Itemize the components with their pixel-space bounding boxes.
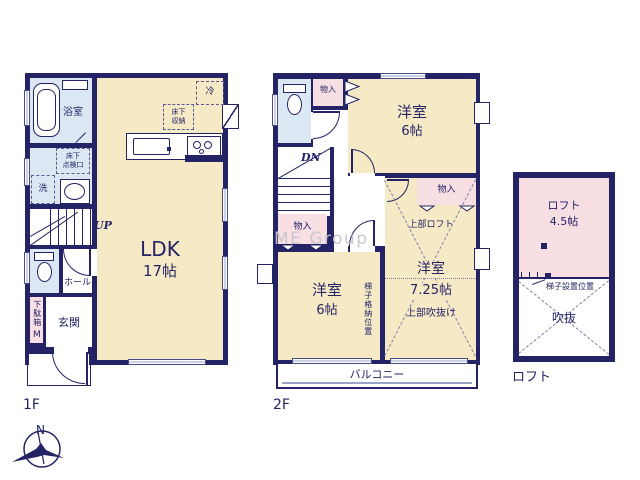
- toilet-bowl-1f: [37, 262, 52, 282]
- ladder-post-mark: [545, 273, 551, 279]
- window: [292, 358, 372, 364]
- stairs-down-label: DN: [301, 151, 321, 164]
- ldk-size-label: 17帖: [130, 262, 190, 280]
- balcony-label: バルコニー: [300, 368, 454, 381]
- ladder-storage-label: 梯子格納位置: [363, 282, 373, 336]
- bedroom-b-size-label: 6帖: [287, 303, 367, 319]
- window: [272, 94, 278, 126]
- burner-right: [204, 141, 212, 149]
- shoe-cabinet-mirror-label: M: [33, 330, 41, 341]
- stairs-up-label: UP: [94, 219, 112, 232]
- compass: N: [10, 416, 74, 480]
- ldk-room: [97, 78, 223, 360]
- floorplan-canvas: ME Group: [0, 0, 640, 480]
- loft-size-label: 4.5帖: [519, 215, 609, 228]
- bedroom-c-size-label: 7.25帖: [391, 283, 471, 299]
- kitchen-sink: [133, 138, 170, 155]
- underfloor-access: 床下 点検口: [56, 148, 90, 174]
- balcony-rail-line: [282, 382, 472, 384]
- bath-counter: [62, 80, 88, 90]
- burner-left: [193, 141, 201, 149]
- entrance-label: 玄関: [47, 316, 91, 329]
- window: [222, 256, 228, 290]
- refrigerator-space: 冷: [196, 81, 224, 105]
- casement-window: [257, 264, 273, 284]
- bathroom-label: 浴室: [63, 107, 83, 119]
- sliding-door-icon: [418, 205, 476, 213]
- bedroom-a-door-leaf: [351, 149, 353, 173]
- ldk-label: LDK: [130, 237, 190, 261]
- window: [380, 73, 426, 79]
- bedroom-c-door-leaf: [387, 179, 409, 181]
- loft-name: ロフト: [512, 366, 551, 385]
- casement-window: [474, 102, 490, 124]
- folding-door-icon: [344, 80, 361, 106]
- hall-door-opening: [92, 249, 97, 276]
- bedroom-b-door-leaf: [373, 220, 375, 246]
- bedroom-c-door-opening: [380, 180, 385, 202]
- toilet-bowl-2f: [287, 94, 302, 115]
- burner-small: [199, 149, 204, 154]
- window: [128, 359, 206, 365]
- floor2-name: 2F: [273, 397, 290, 413]
- window: [390, 358, 468, 364]
- kitchen-wall-strip: [185, 155, 228, 162]
- closet-right-label: 物入: [417, 185, 476, 196]
- hall-door-leaf: [89, 249, 91, 276]
- side-door-1f: [222, 104, 239, 129]
- upper-void-label: 上部吹抜け: [391, 308, 471, 320]
- shoe-cabinet-label: 下駄箱: [32, 300, 42, 327]
- vanity-bowl: [64, 183, 85, 200]
- window: [24, 252, 30, 284]
- toilet-tank-2f: [283, 84, 306, 93]
- watermark: ME Group: [274, 229, 369, 249]
- window: [24, 158, 30, 186]
- kitchen-faucet: [167, 147, 171, 151]
- laundry-space: 洗: [31, 175, 55, 204]
- loft-boundary-dotted: [385, 278, 476, 279]
- toilet-tank-1f: [34, 252, 54, 261]
- bathtub-inner: [37, 89, 56, 131]
- toilet-door-leaf: [313, 111, 340, 113]
- void-label: 吹抜: [529, 311, 599, 326]
- loft-post-mark: [541, 243, 547, 249]
- loft-area-label: ロフト: [519, 199, 609, 212]
- compass-north-label: N: [36, 423, 45, 437]
- window: [24, 90, 30, 126]
- floor1-name: 1F: [23, 397, 40, 413]
- upper-loft-label: 上部ロフト: [391, 220, 471, 231]
- bedroom-a-label: 洋室: [372, 103, 452, 121]
- closet-top-label: 物入: [313, 85, 343, 95]
- hall-label: ホール: [63, 278, 92, 289]
- ladder-marks: [521, 272, 545, 278]
- bedroom-a-door-opening: [350, 173, 375, 176]
- window: [222, 188, 228, 222]
- bedroom-c-label: 洋室: [391, 261, 471, 278]
- entrance-door-leaf: [86, 352, 88, 385]
- casement-window: [474, 248, 490, 270]
- bedroom-a-size-label: 6帖: [372, 124, 452, 140]
- underfloor-storage: 床下 収納: [163, 104, 194, 130]
- ladder-position-label: 梯子設置位置: [546, 282, 594, 292]
- stairs-2f-treads: [278, 178, 330, 216]
- bedroom-b-label: 洋室: [287, 281, 367, 299]
